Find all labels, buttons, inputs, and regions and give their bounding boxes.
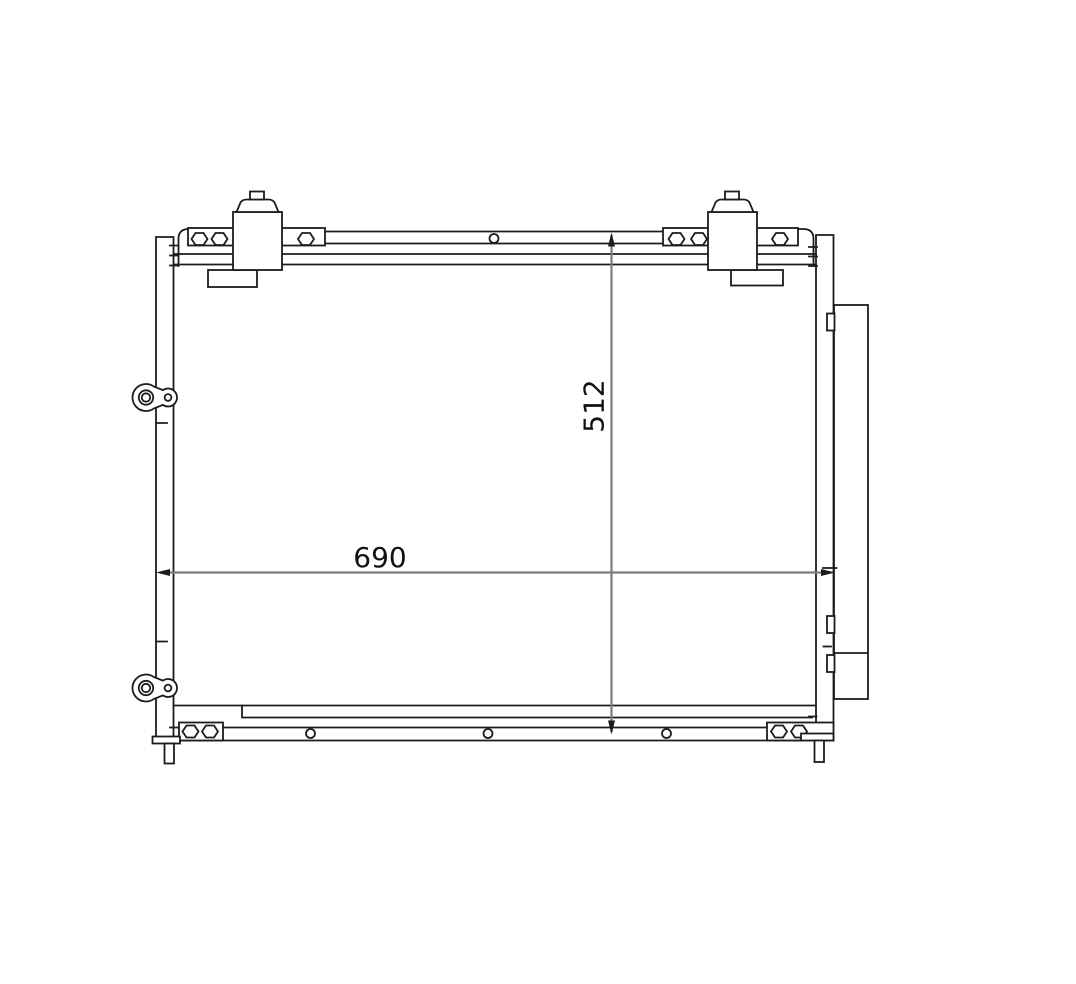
height-dimension-label: 512 xyxy=(578,379,611,432)
drier-clip-top xyxy=(827,314,835,331)
receiver-drier xyxy=(824,305,869,699)
bottom-left-bracket xyxy=(153,737,181,764)
fitting-tab xyxy=(208,270,257,287)
drawing-canvas: 512 690 xyxy=(0,0,1076,984)
width-dimension: 690 xyxy=(156,541,837,576)
fitting-tab xyxy=(731,270,783,286)
arrowhead-left xyxy=(156,569,170,576)
bottom-mounting-rail xyxy=(170,723,834,741)
width-dimension-label: 690 xyxy=(353,541,406,574)
height-dimension: 512 xyxy=(578,233,616,735)
right-mounting-pin xyxy=(815,741,825,763)
fitting-nub xyxy=(250,192,264,200)
bottom-right-bracket xyxy=(801,734,834,763)
left-header-tank xyxy=(156,237,174,737)
rail-hole xyxy=(484,729,493,738)
upper-grommet-mount xyxy=(132,384,177,411)
lower-grommet-mount xyxy=(132,675,177,702)
arrowhead-up xyxy=(608,233,615,247)
condenser-core xyxy=(174,254,817,718)
drier-clip-middle xyxy=(827,616,835,633)
bracket-foot xyxy=(153,737,181,744)
rail-hole xyxy=(490,234,499,243)
bracket-foot xyxy=(801,734,834,741)
drier-clip-bottom xyxy=(827,655,835,672)
fitting-dome xyxy=(712,200,754,213)
fitting-nub xyxy=(725,192,739,200)
left-mounting-pin xyxy=(165,744,175,764)
rail-hole xyxy=(306,729,315,738)
rail-hole xyxy=(662,729,671,738)
fitting-body xyxy=(233,212,282,270)
fitting-body xyxy=(708,212,757,270)
condenser-diagram: 512 690 xyxy=(0,0,1076,984)
left-tank-tick-marks xyxy=(156,423,167,642)
fitting-dome xyxy=(237,200,279,213)
